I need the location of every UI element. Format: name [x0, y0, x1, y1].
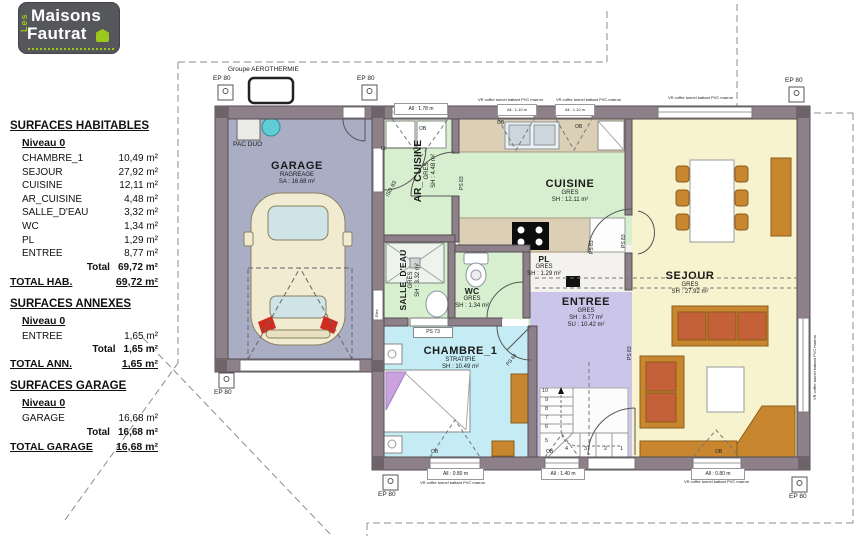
- vr-shutter-note: VR coffre tunnel battant PVC marron: [478, 97, 543, 102]
- table-title: SURFACES HABITABLES: [10, 120, 158, 132]
- nightstand: [382, 436, 402, 453]
- window-tag-ob: OB: [575, 124, 582, 130]
- table-total: Total1,65 m²: [6, 343, 158, 357]
- window-size-label: All : 1.10 m: [555, 104, 595, 116]
- table-row: CHAMBRE_110,49 m²: [22, 152, 158, 166]
- elec-panel-label: Elec: [374, 309, 379, 317]
- table-total: Total16,68 m²: [6, 426, 158, 440]
- table-row: ENTREE1,65 m²: [22, 330, 158, 344]
- dining-table: [690, 160, 734, 242]
- ep80-label: EP 80: [378, 491, 396, 498]
- table-grand-total: TOTAL GARAGE16,68 m²: [10, 440, 158, 455]
- window-tag-ob: OB: [419, 126, 426, 132]
- table-title: SURFACES GARAGE: [10, 380, 158, 392]
- window-tag-ob: OB: [546, 449, 553, 455]
- table-total: Total69,72 m²: [6, 261, 158, 275]
- table-surfaces-habitables: SURFACES HABITABLES Niveau 0 CHAMBRE_110…: [6, 120, 158, 290]
- house-icon: [96, 29, 109, 42]
- washing-machine-label: LL: [381, 146, 387, 152]
- stair-step-number: 10: [542, 388, 548, 394]
- ep80-label: EP 80: [785, 77, 803, 84]
- coffee-table: [707, 367, 744, 412]
- door-tag-ps83: PS 83: [589, 240, 595, 254]
- window-size-label: All : 0.80 m: [427, 468, 484, 480]
- room-label-pl: PL GRES SH : 1.29 m²: [516, 254, 572, 278]
- aerothermie-unit: [249, 78, 293, 103]
- window-tag-ob: OB: [431, 449, 438, 455]
- room-label-entree: ENTREE GRES SH : 8.77 m² SU : 10.42 m²: [528, 296, 644, 329]
- stair-step-number: 2: [604, 446, 607, 452]
- table-grand-total: TOTAL HAB.69,72 m²: [10, 275, 158, 290]
- dining-chair: [676, 166, 689, 182]
- dining-chair: [676, 214, 689, 230]
- table-title: SURFACES ANNEXES: [10, 298, 158, 310]
- door-tag-ps83: PS 83: [627, 346, 633, 360]
- surface-tables: SURFACES HABITABLES Niveau 0 CHAMBRE_110…: [6, 120, 158, 463]
- table-level: Niveau 0: [22, 315, 158, 327]
- wardrobe: [492, 441, 514, 456]
- table-surfaces-annexes: SURFACES ANNEXES Niveau 0 ENTREE1,65 m² …: [6, 298, 158, 373]
- stair-step-number: 3: [584, 446, 587, 452]
- pac-duo-label: PAC DUO: [233, 141, 262, 148]
- ep80-box: [789, 87, 804, 102]
- ep80-box: [792, 477, 807, 492]
- stair-step-number: 5: [545, 438, 548, 444]
- ep80-box: [362, 85, 377, 100]
- vr-shutter-note: VR coffre tunnel battant PVC marron: [684, 479, 749, 484]
- stair-step-number: 6: [545, 424, 548, 430]
- logo-line2: Fautrat: [27, 24, 87, 44]
- aerothermie-label: Groupe AEROTHERMIE: [228, 66, 299, 73]
- table-surfaces-garage: SURFACES GARAGE Niveau 0 GARAGE16,68 m² …: [6, 380, 158, 455]
- ep80-box: [219, 373, 234, 388]
- logo-tagline-strip: [28, 48, 114, 50]
- dining-chair: [676, 190, 689, 206]
- window-size-label: All : 1.78 m: [394, 103, 448, 115]
- table-row: GARAGE16,68 m²: [22, 412, 158, 426]
- vr-shutter-note: VR coffre tunnel battant PVC marron: [812, 335, 817, 400]
- table-level: Niveau 0: [22, 397, 158, 409]
- vr-shutter-note: VR coffre tunnel battant PVC marron: [556, 97, 621, 102]
- table-row: WC1,34 m²: [22, 220, 158, 234]
- room-label-salle-deau: SALLE_D'EAU GRES SH : 3.32 m²: [398, 236, 422, 324]
- ep80-label: EP 80: [213, 75, 231, 82]
- ep80-label: EP 80: [357, 75, 375, 82]
- ep80-label: EP 80: [214, 389, 232, 396]
- dining-chair: [735, 166, 748, 182]
- tv-bench: [640, 441, 737, 457]
- table-row: ENTREE8,77 m²: [22, 247, 158, 261]
- room-label-garage: GARAGE RAGREAGE SA : 16.68 m²: [240, 160, 354, 186]
- car: [244, 193, 352, 345]
- window-size-label: All : 1.40 m: [541, 468, 585, 480]
- door-tag-ps83: PS 83: [621, 234, 627, 248]
- stair-step-number: 4: [565, 446, 568, 452]
- door-tag-ps83: PS 83: [459, 176, 465, 190]
- dining-chair: [735, 214, 748, 230]
- table-row: SEJOUR27,92 m²: [22, 166, 158, 180]
- ep80-label: EP 80: [789, 493, 807, 500]
- room-label-chambre: CHAMBRE_1 STRATIFIE SH : 10.49 m²: [398, 345, 523, 371]
- room-label-wc: WC GRES SH : 1.34 m²: [428, 286, 516, 310]
- room-label-cuisine: CUISINE GRES SH : 12.11 m²: [510, 178, 630, 204]
- stair-step-number: 8: [545, 406, 548, 412]
- stair-step-number: 1: [620, 446, 623, 452]
- table-row: PL1,29 m²: [22, 234, 158, 248]
- window-size-label: All : 1.10 m: [497, 104, 537, 116]
- toilet-tank: [464, 253, 488, 264]
- door-tag-ps73: PS 73: [413, 327, 453, 338]
- ep80-box: [383, 475, 398, 490]
- room-label-sejour: SEJOUR GRES SH : 27.92 m²: [630, 270, 750, 296]
- table-level: Niveau 0: [22, 137, 158, 149]
- table-row: CUISINE12,11 m²: [22, 179, 158, 193]
- table-row: AR_CUISINE4,48 m²: [22, 193, 158, 207]
- dining-chair: [735, 190, 748, 206]
- stair-step-number: 7: [545, 415, 548, 421]
- vr-shutter-note: VR coffre tunnel battant PVC marron: [420, 480, 485, 485]
- table-grand-total: TOTAL ANN.1,65 m²: [10, 357, 158, 372]
- company-logo: Les Maisons Fautrat: [18, 2, 120, 54]
- vr-shutter-note: VR coffre tunnel battant PVC marron: [668, 95, 733, 100]
- window-tag-ob: OB: [715, 449, 722, 455]
- floor-plan-sheet: Les Maisons Fautrat SURFACES HABITABLES …: [0, 0, 868, 536]
- logo-line1: Maisons: [31, 6, 101, 26]
- table-row: SALLE_D'EAU3,32 m²: [22, 206, 158, 220]
- stair-step-number: 9: [545, 397, 548, 403]
- sideboard: [771, 158, 791, 236]
- window-tag-ob: OB: [497, 120, 504, 126]
- ep80-box: [218, 85, 233, 100]
